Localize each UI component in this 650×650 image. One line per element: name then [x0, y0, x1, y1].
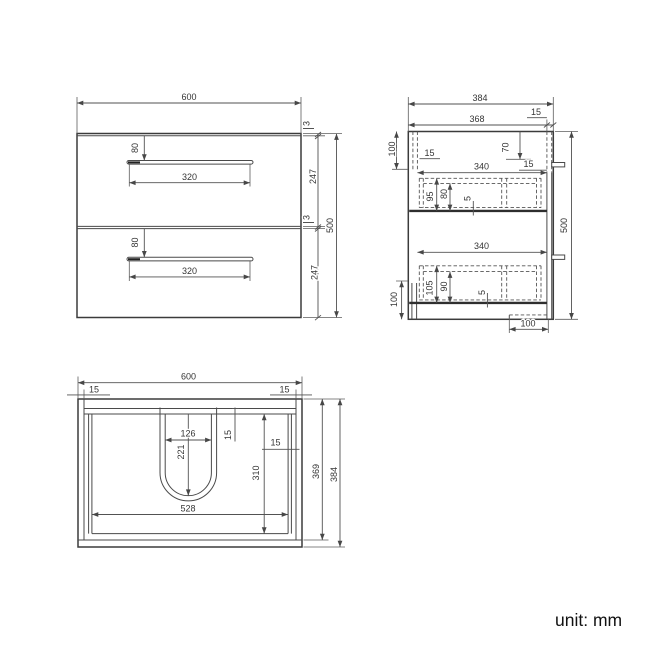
side-view: 384 368 15 100 15 70 15 340 95 80 5 500 …: [387, 93, 578, 333]
fv-drawer1-handle: [127, 161, 253, 165]
tv-left-panel-label: 15: [89, 385, 99, 395]
fv-mid-gap-label: 3: [302, 215, 312, 220]
unit-note: unit: mm: [555, 610, 622, 630]
tv-right-panel-label: 15: [279, 385, 289, 395]
tv-total-depth-label: 384: [329, 467, 339, 482]
fv-handle1-offset-label: 80: [130, 143, 140, 153]
sv-bottom-recess-label: 100: [520, 319, 535, 329]
vanity-cabinet-drawing: 600 3 247 3 247 500 80 320 80 320: [0, 0, 650, 650]
top-view: 600 15 15 126 221 15 15 310 528 369 384: [67, 372, 345, 548]
fv-drawer2-handle: [127, 257, 253, 261]
sv-hanger-peg-top: [552, 163, 565, 167]
technical-drawing-page: 600 3 247 3 247 500 80 320 80 320: [0, 0, 650, 650]
tv-outline: [78, 399, 302, 547]
sv-drawer2-depth-label: 340: [474, 241, 489, 251]
tv-body-depth-label: 369: [311, 464, 321, 479]
sv-hanger-inset-label: 15: [523, 159, 533, 169]
sv-front-panel-label: 15: [424, 148, 434, 158]
tv-cutout-depth-label: 221: [176, 444, 186, 459]
fv-handle2-length-label: 320: [182, 266, 197, 276]
fv-top-gap-label: 3: [302, 121, 312, 126]
sv-drawer1-bottom-label: 5: [463, 196, 473, 201]
tv-inner-width-label: 528: [180, 504, 195, 514]
fv-drawer1-height-label: 247: [308, 169, 318, 184]
sv-back-offset-ticks: [527, 118, 556, 128]
sv-left-bottom-label: 100: [389, 292, 399, 307]
sv-back-offset-label: 15: [531, 107, 541, 117]
tv-top-edge-label: 15: [223, 430, 233, 440]
tv-side-panel-label: 15: [270, 438, 280, 448]
sv-hanger-drop-label: 70: [501, 142, 511, 152]
fv-width-label: 600: [181, 92, 196, 102]
fv-handle1-length-label: 320: [182, 172, 197, 182]
sv-total-depth-label: 384: [472, 93, 487, 103]
fv-total-height-label: 500: [325, 218, 335, 233]
sv-drawer2-bottom-label: 5: [477, 290, 487, 295]
fv-handle2-offset-label: 80: [130, 237, 140, 247]
fv-drawer2-height-label: 247: [310, 265, 320, 280]
front-view: 600 3 247 3 247 500 80 320 80 320: [77, 92, 342, 320]
sv-drawer1-side-label: 95: [425, 191, 435, 201]
sv-inner-depth-label: 368: [469, 114, 484, 124]
sv-drawer1-depth-label: 340: [474, 162, 489, 172]
tv-cutout-width-label: 126: [180, 429, 195, 439]
tv-width-label: 600: [181, 372, 196, 382]
tv-inner-depth-label: 310: [251, 465, 261, 480]
sv-drawer1-back-label: 80: [439, 189, 449, 199]
sv-total-height-label: 500: [559, 218, 569, 233]
sv-hanger-peg-bottom: [552, 255, 565, 259]
sv-left-top-label: 100: [387, 141, 397, 156]
sv-drawer2-back-label: 90: [439, 281, 449, 291]
sv-drawer2-side-label: 105: [425, 280, 435, 295]
